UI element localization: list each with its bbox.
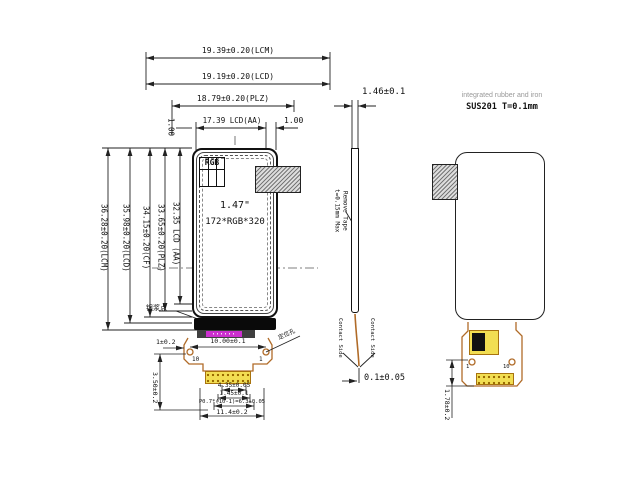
dim-lcm-width: 19.39±0.20(LCM) xyxy=(146,47,330,56)
dim-fpc-height: 3.50±0.2 xyxy=(151,366,158,410)
dim-finger: 4.35±0.05 xyxy=(210,383,258,390)
back-fpc-connector xyxy=(476,373,514,385)
material-spec: SUS201 T=0.1mm xyxy=(444,103,560,112)
front-left-dimension-lines xyxy=(102,148,200,330)
back-pin-label-left: 1 xyxy=(466,364,469,370)
tape-note-line2: t=0.15mm Max xyxy=(333,180,340,242)
tail-note-right: Contact Side xyxy=(369,316,375,360)
lcd-module-drawing: RGB 1.47" 172*RGB*320 19.39±0.20(LCM) 19… xyxy=(0,0,640,480)
rgb-pixel-table: RGB xyxy=(199,157,225,187)
front-hatch-area xyxy=(255,166,301,193)
dim-pin: 1.45±0.1 xyxy=(212,391,256,398)
dim-plz-height: 33.65±0.20(PLZ) xyxy=(156,168,164,308)
panel-size-label: 1.47" xyxy=(196,200,274,211)
dim-aa-width: 17.39 LCD(AA) xyxy=(196,117,268,125)
silver-dot-note: 银浆点 xyxy=(146,305,167,313)
front-bottom-bezel xyxy=(194,318,276,330)
tape-note-line1: Remove Tape xyxy=(341,180,348,242)
pin-label-left: 10 xyxy=(192,357,199,364)
back-view-body xyxy=(455,152,545,320)
dim-thickness: 1.46±0.1 xyxy=(362,88,405,98)
dim-edge: 1±0.2 xyxy=(156,339,176,346)
dim-lcd-width: 19.19±0.20(LCD) xyxy=(146,73,330,82)
dim-plz-width: 18.79±0.20(PLZ) xyxy=(172,95,294,104)
back-component-chip xyxy=(472,333,485,351)
dim-margin-right: 1.00 xyxy=(284,117,303,126)
side-view-profile xyxy=(351,148,359,313)
panel-resolution-label: 172*RGB*320 xyxy=(192,218,278,228)
back-pin-label-right: 10 xyxy=(503,364,510,370)
dim-tail: 1.78±0.2 xyxy=(443,388,450,422)
dim-lcd-height: 35.98±0.20(LCD) xyxy=(121,168,129,308)
rgb-label: RGB xyxy=(205,158,219,167)
dim-pitch: P0.7*(10-1)=6.3±0.05 xyxy=(198,399,266,405)
back-hatch-area xyxy=(432,164,458,200)
pin-label-right: 1 xyxy=(259,357,263,364)
dim-margin-left: 1.00 xyxy=(166,112,174,142)
material-note: integrated rubber and iron xyxy=(440,92,564,100)
dim-lcm-height: 36.28±0.20(LCM) xyxy=(99,168,107,308)
tail-note-left: Contact Side xyxy=(337,316,343,360)
dim-width: 11.4±0.2 xyxy=(208,409,256,416)
dim-holes: 10.00±0.1 xyxy=(196,338,260,345)
dim-cf-height: 34.15±0.20(CF) xyxy=(141,168,149,308)
dim-aa-height: 32.35 LCD (AA) xyxy=(171,166,179,302)
dim-protrusion: 0.1±0.05 xyxy=(364,374,405,383)
